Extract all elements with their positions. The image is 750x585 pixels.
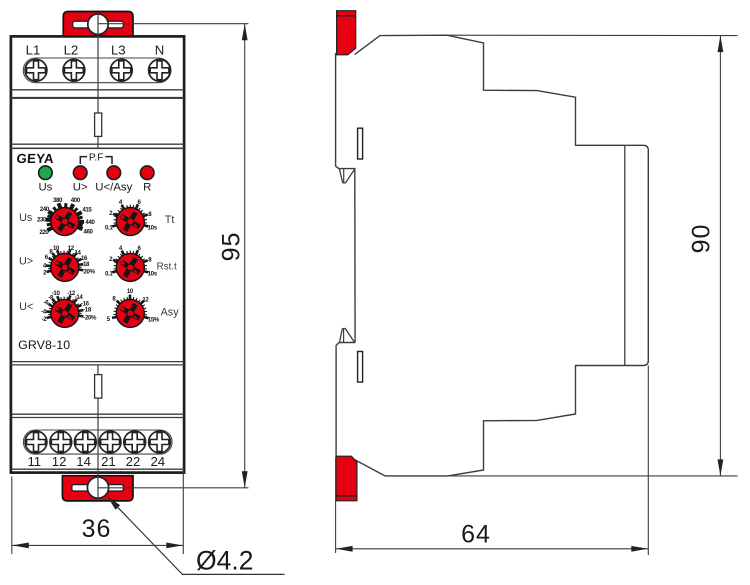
svg-text:380: 380 — [53, 197, 63, 204]
svg-text:R: R — [143, 181, 151, 193]
svg-text:36: 36 — [82, 515, 112, 543]
svg-text:10s: 10s — [148, 225, 158, 232]
svg-text:15%: 15% — [148, 317, 160, 324]
svg-text:L3: L3 — [111, 43, 126, 58]
svg-text:415: 415 — [82, 206, 92, 213]
svg-text:90: 90 — [688, 224, 716, 254]
svg-text:20%: 20% — [84, 268, 96, 275]
svg-text:18: 18 — [83, 261, 90, 268]
svg-text:21: 21 — [101, 454, 116, 469]
svg-text:24: 24 — [150, 454, 165, 469]
svg-text:10: 10 — [127, 288, 134, 295]
svg-text:U</Asy: U</Asy — [95, 181, 132, 193]
svg-text:U>: U> — [19, 255, 33, 267]
svg-text:460: 460 — [83, 229, 93, 236]
svg-text:Tt: Tt — [165, 214, 175, 226]
svg-text:440: 440 — [85, 219, 95, 226]
svg-text:64: 64 — [461, 521, 491, 549]
svg-text:11: 11 — [27, 454, 41, 469]
svg-text:10: 10 — [53, 245, 60, 252]
svg-text:GRV8-10: GRV8-10 — [18, 338, 70, 352]
svg-text:95: 95 — [218, 232, 246, 262]
svg-text:Asy: Asy — [161, 307, 180, 319]
svg-text:Rst.t: Rst.t — [157, 261, 177, 272]
svg-text:GEYA: GEYA — [16, 151, 55, 166]
svg-text:220: 220 — [39, 229, 49, 236]
svg-text:-10: -10 — [52, 290, 61, 297]
svg-text:P.F: P.F — [89, 153, 104, 164]
svg-text:0.1: 0.1 — [105, 225, 113, 232]
svg-text:U<: U< — [19, 301, 33, 313]
svg-text:12: 12 — [52, 454, 67, 469]
svg-text:12: 12 — [142, 297, 149, 304]
svg-text:-18: -18 — [83, 307, 92, 314]
svg-text:Us: Us — [19, 212, 33, 224]
svg-text:U>: U> — [73, 181, 88, 193]
svg-text:0.1: 0.1 — [105, 271, 113, 278]
svg-text:Us: Us — [38, 181, 52, 193]
svg-text:L1: L1 — [26, 43, 41, 58]
svg-text:230: 230 — [37, 216, 47, 223]
svg-text:N: N — [155, 43, 165, 58]
svg-text:Ø4.2: Ø4.2 — [196, 546, 253, 576]
svg-text:240: 240 — [40, 206, 50, 213]
svg-text:22: 22 — [126, 454, 141, 469]
svg-text:400: 400 — [71, 197, 81, 204]
svg-text:-20%: -20% — [83, 315, 97, 322]
svg-text:L2: L2 — [64, 43, 79, 58]
svg-text:14: 14 — [76, 454, 91, 469]
